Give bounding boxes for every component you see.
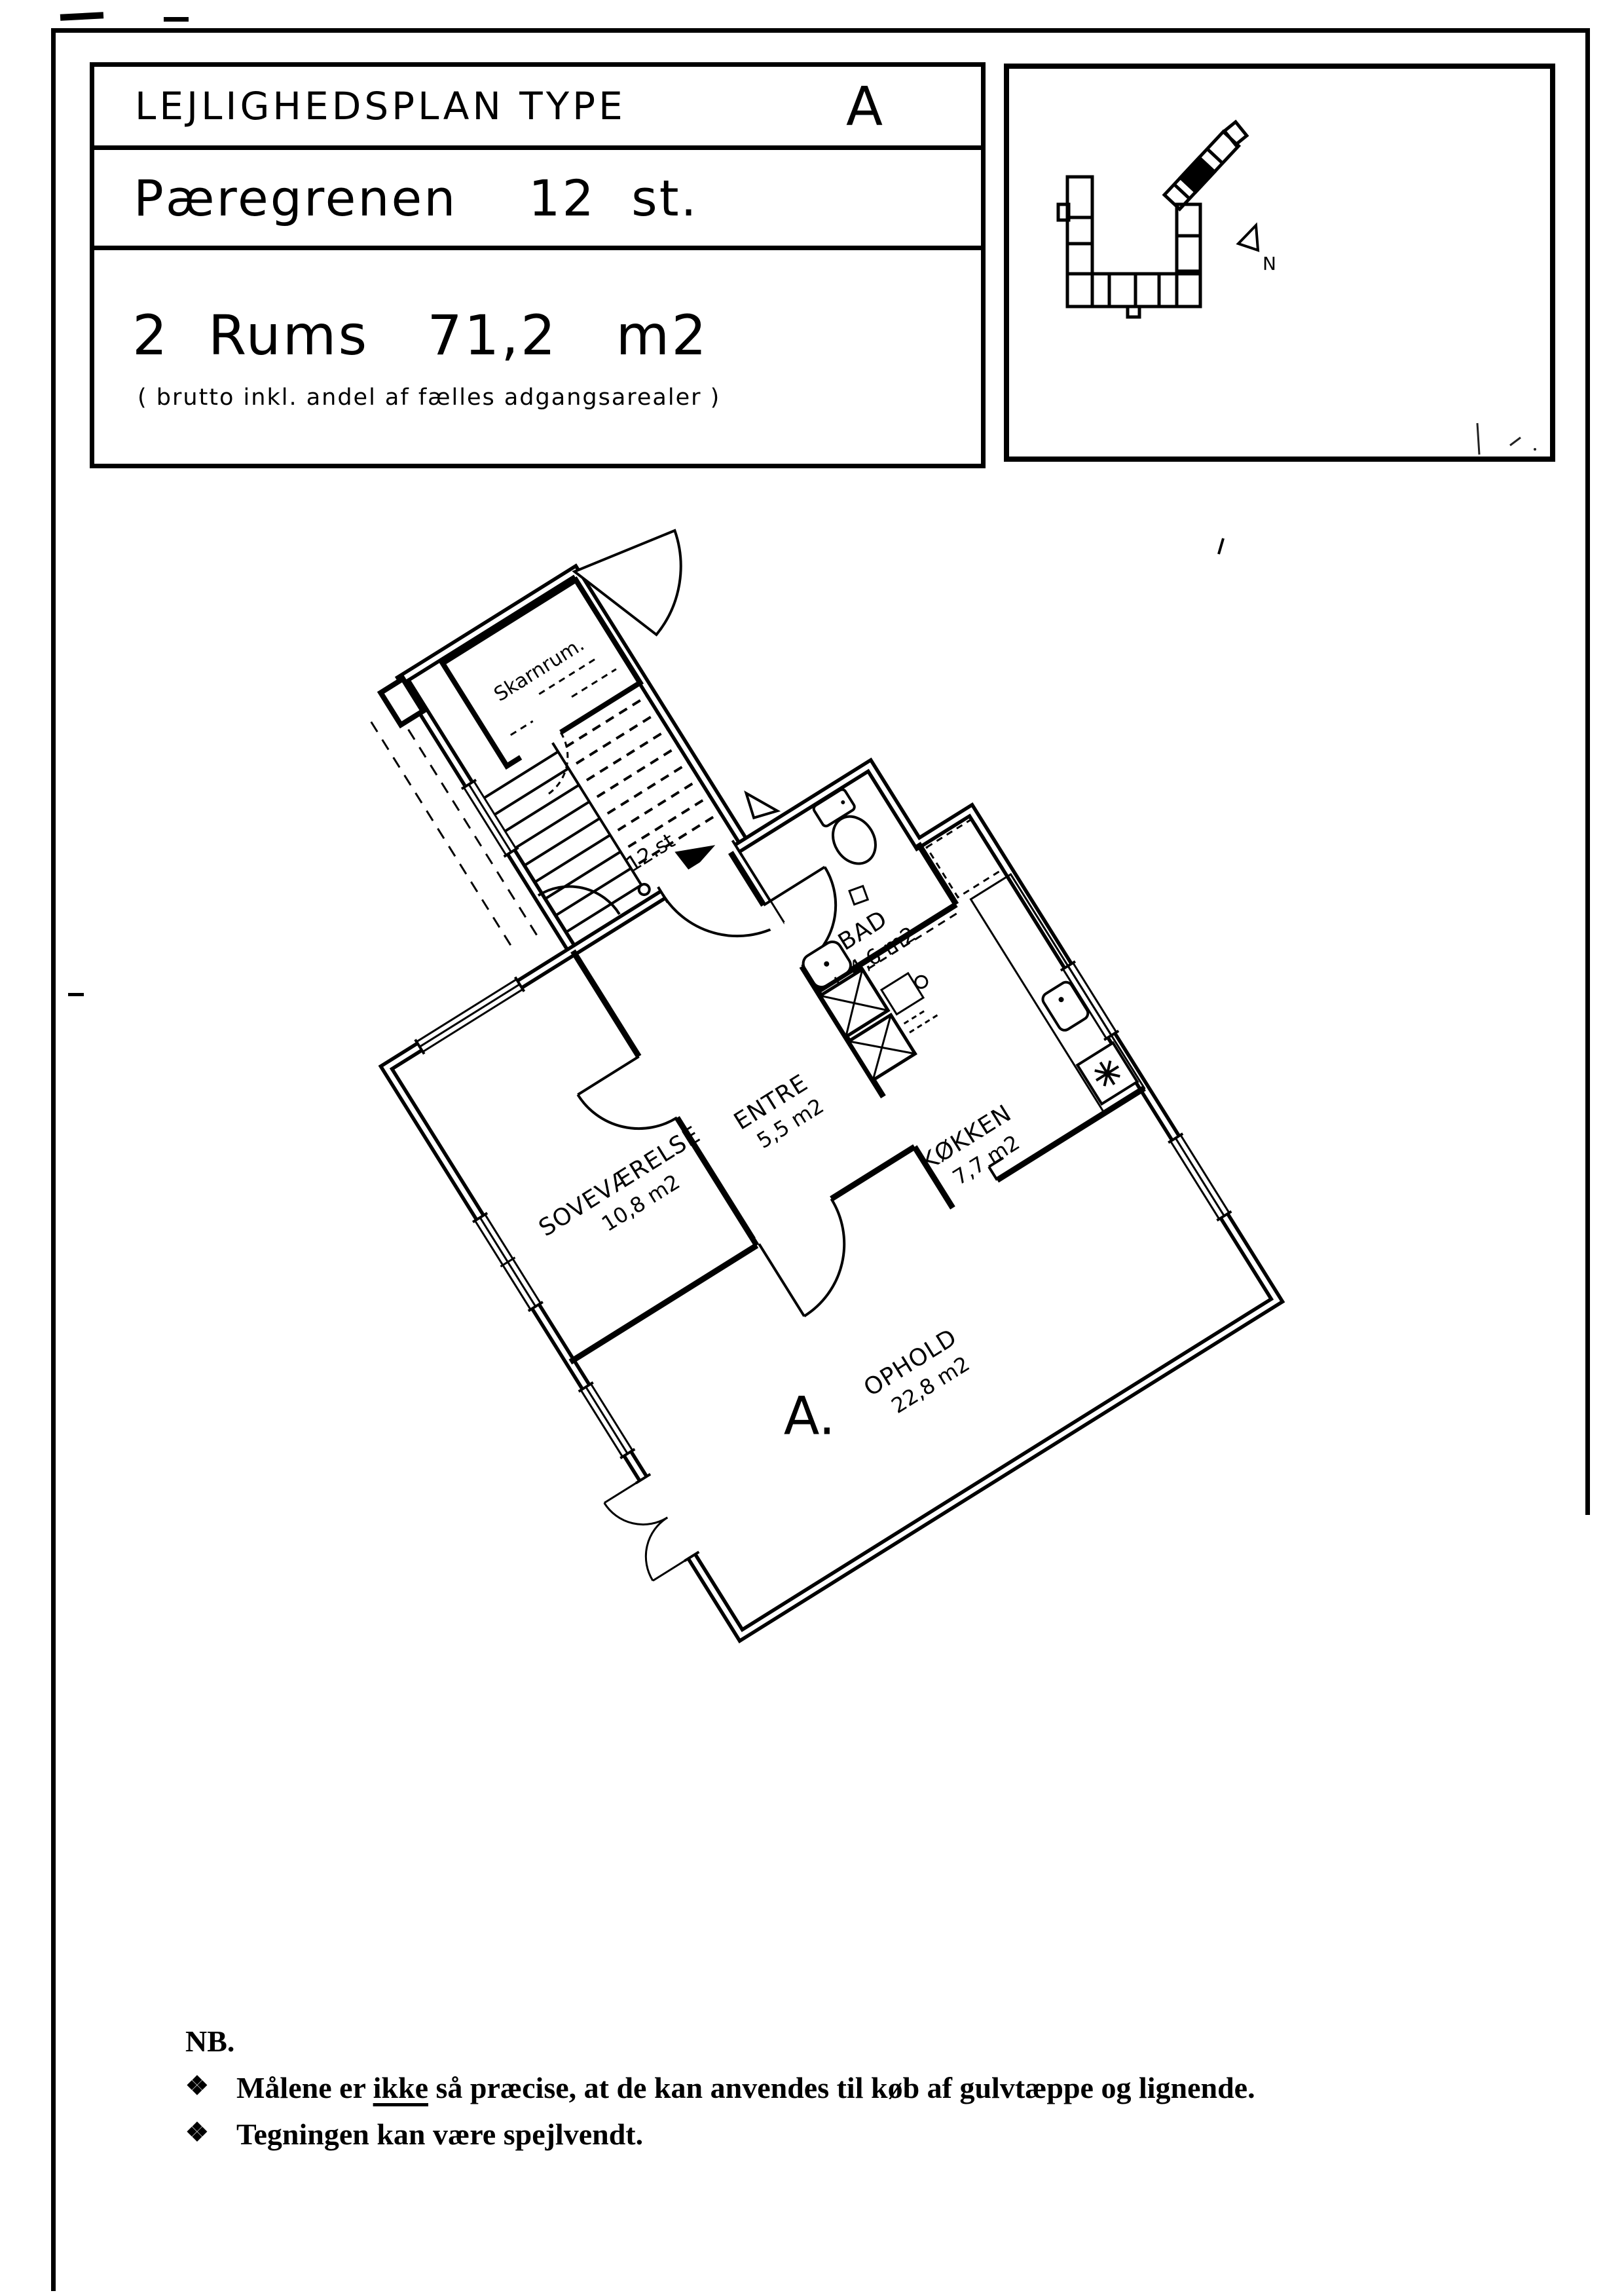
notes-heading: NB.	[185, 2024, 1495, 2059]
site-highlight-apartment	[1181, 157, 1215, 192]
note1-underlined: ikke	[373, 2071, 428, 2104]
bullet-icon: ❖	[185, 2070, 236, 2101]
site-left-tab	[1058, 204, 1069, 220]
floor-plan: Skarnrum.	[177, 456, 1284, 1660]
drawing-canvas: N	[0, 0, 1624, 2295]
apartment-letter: A.	[784, 1386, 836, 1447]
scan-mark	[1219, 538, 1223, 554]
note1-post: så præcise, at de kan anvendes til køb a…	[428, 2071, 1255, 2104]
marker-triangle-icon	[741, 784, 777, 823]
notes-section: NB. ❖Målene er ikke så præcise, at de ka…	[185, 2024, 1495, 2152]
site-bottom-tab	[1128, 307, 1139, 317]
north-arrow-icon: N	[1238, 225, 1276, 274]
site-corner-marks	[1477, 423, 1536, 455]
drawing-sheet: LEJLIGHEDSPLAN TYPE A Pæregrenen 12 st. …	[0, 0, 1624, 2295]
site-right-wing	[1177, 204, 1200, 307]
note-item-2: ❖Tegningen kan være spejlvendt.	[185, 2117, 1495, 2152]
note2-text: Tegningen kan være spejlvendt.	[236, 2118, 643, 2151]
site-angled-wing	[1164, 121, 1249, 210]
bullet-icon: ❖	[185, 2117, 236, 2148]
north-label: N	[1263, 253, 1276, 274]
site-left-wing	[1067, 177, 1092, 307]
note-item-1: ❖Målene er ikke så præcise, at de kan an…	[185, 2070, 1495, 2105]
note1-pre: Målene er	[236, 2071, 373, 2104]
site-map-building: N	[1058, 121, 1536, 455]
